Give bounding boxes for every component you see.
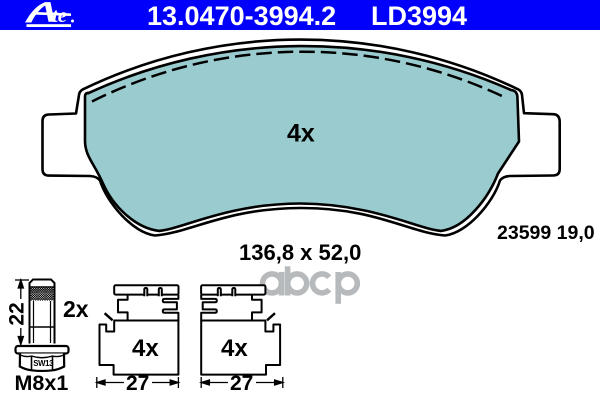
svg-text:2x: 2x [63, 296, 89, 322]
svg-text:4x: 4x [132, 335, 159, 362]
svg-text:22: 22 [6, 302, 29, 325]
svg-text:4x: 4x [221, 335, 248, 362]
svg-text:te: te [52, 5, 67, 27]
svg-text:27: 27 [230, 372, 253, 395]
svg-text:4x: 4x [287, 120, 315, 148]
svg-text:27: 27 [126, 372, 149, 395]
svg-text:13.0470-3994.2: 13.0470-3994.2 [147, 1, 336, 31]
svg-text:23599 19,0: 23599 19,0 [497, 222, 595, 244]
svg-text:M8x1: M8x1 [15, 371, 69, 395]
svg-text:136,8 x 52,0: 136,8 x 52,0 [239, 240, 361, 265]
svg-text:LD3994: LD3994 [371, 1, 467, 31]
svg-text:SW13: SW13 [33, 359, 54, 368]
